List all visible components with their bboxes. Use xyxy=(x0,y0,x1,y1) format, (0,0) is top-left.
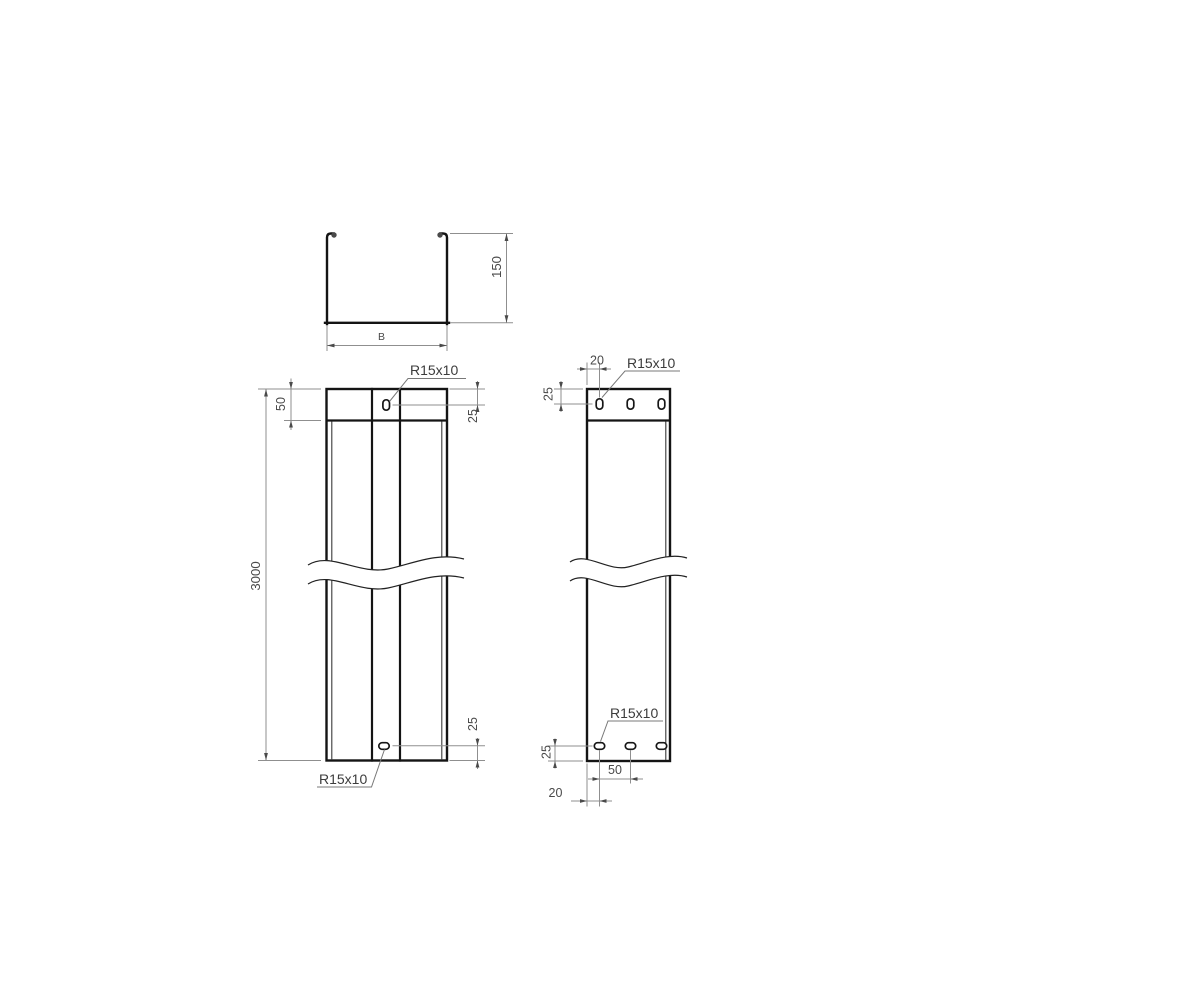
leader-line xyxy=(602,371,680,398)
arrowhead xyxy=(289,421,293,428)
arrowhead xyxy=(580,367,587,371)
arrowhead xyxy=(264,389,268,397)
leader-line xyxy=(601,721,664,742)
slot-hole-bottom xyxy=(379,743,389,750)
arrowhead xyxy=(476,761,480,768)
slot-hole xyxy=(656,743,666,750)
profile-left-wall xyxy=(327,234,334,325)
slot-label-top: R15x10 xyxy=(627,355,675,371)
dim-endzone-label: 50 xyxy=(274,397,288,411)
arrowhead xyxy=(476,739,480,746)
arrowhead xyxy=(264,753,268,761)
arrowhead xyxy=(440,344,448,348)
arrowhead xyxy=(559,382,563,389)
drawing-page: 150 B 50 xyxy=(0,0,1200,1000)
slot-hole xyxy=(625,743,635,750)
slot-label-top: R15x10 xyxy=(410,362,458,378)
side-view: 20 25 25 50 20 R15x10 R15x10 xyxy=(540,354,688,807)
dim-margin-top-label: 20 xyxy=(590,354,604,368)
arrowhead xyxy=(289,382,293,389)
dim-slot-bottom-offset-label: 25 xyxy=(466,717,480,731)
dim-slot-pitch-label: 50 xyxy=(608,763,622,777)
front-view: 50 3000 25 25 R15x10 R15x10 xyxy=(248,362,485,787)
dim-slot-top-offset-label: 25 xyxy=(466,409,480,423)
arrowhead xyxy=(553,761,557,768)
dim-slot-top-offset-label: 25 xyxy=(542,387,556,401)
arrowhead xyxy=(327,344,335,348)
dim-width-label: B xyxy=(378,331,385,343)
slot-hole xyxy=(627,399,634,409)
technical-drawing: 150 B 50 xyxy=(0,0,1200,1000)
dim-slot-bottom-offset-label: 25 xyxy=(540,745,554,759)
slot-label-bottom: R15x10 xyxy=(319,771,367,787)
dim-height-label: 150 xyxy=(489,256,504,278)
profile-right-hook xyxy=(437,232,442,237)
profile-right-wall xyxy=(441,234,448,325)
arrowhead xyxy=(559,404,563,411)
profile-left-hook xyxy=(331,232,336,237)
slot-hole xyxy=(594,743,604,750)
arrowhead xyxy=(505,315,509,323)
arrowhead xyxy=(631,777,638,781)
slot-hole xyxy=(658,399,665,409)
arrowhead xyxy=(580,799,587,803)
arrowhead xyxy=(593,777,600,781)
dim-margin-bottom-label: 20 xyxy=(549,786,563,800)
slot-label-bottom: R15x10 xyxy=(610,705,658,721)
slot-hole xyxy=(596,399,603,409)
arrowhead xyxy=(600,367,607,371)
arrowhead xyxy=(600,799,607,803)
slot-hole-top xyxy=(383,400,390,410)
cross-section-view: 150 B xyxy=(325,232,513,351)
arrowhead xyxy=(505,234,509,242)
arrowhead xyxy=(553,739,557,746)
arrowhead xyxy=(476,382,480,389)
dim-length-label: 3000 xyxy=(248,561,263,590)
